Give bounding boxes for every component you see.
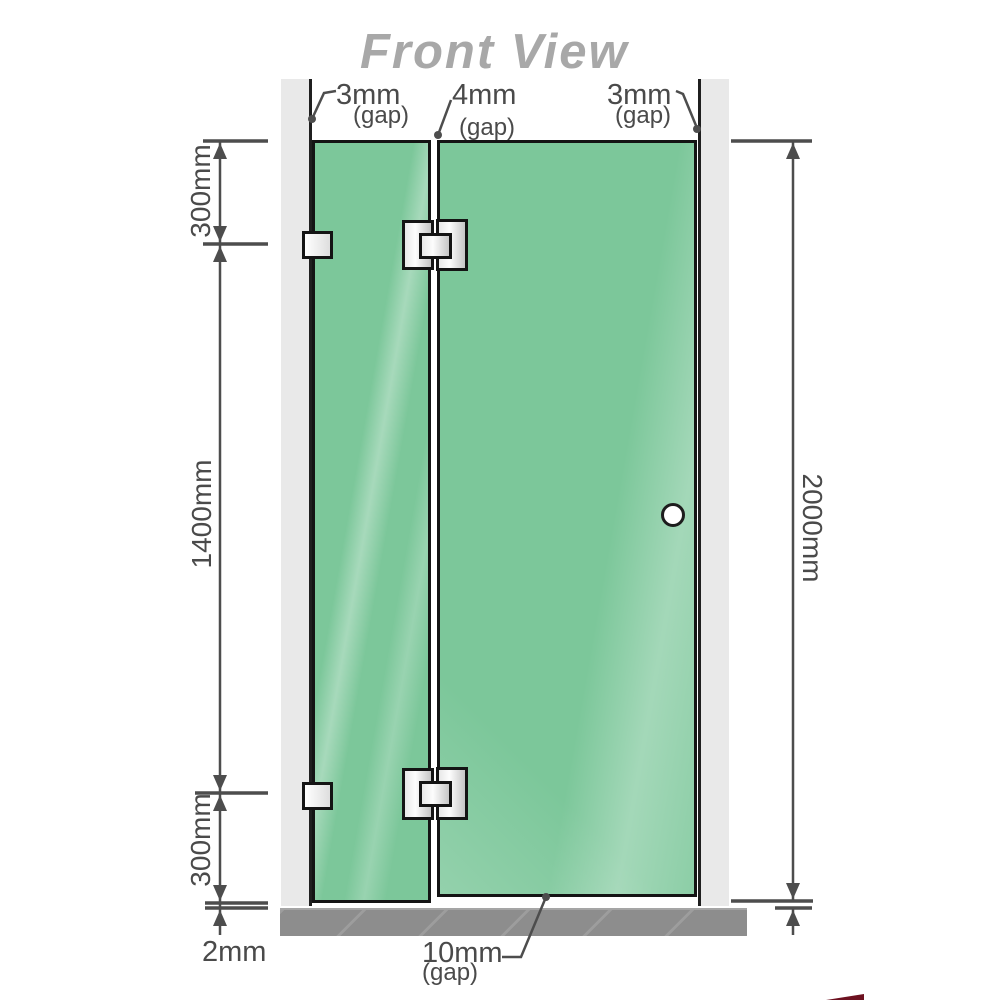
dim-total-height: 2000mm — [798, 474, 826, 583]
door-glass-panel — [437, 140, 697, 897]
dim-left-top: 300mm — [187, 144, 215, 237]
gap-middle-value: 4mm — [452, 81, 516, 110]
gap-middle-note: (gap) — [459, 116, 515, 140]
hinge-bridge — [419, 233, 452, 259]
wall-bracket-top — [302, 231, 333, 259]
floor-base — [280, 908, 747, 936]
door-knob — [661, 503, 685, 527]
front-view-diagram: Front View — [0, 0, 1000, 1000]
logo-fragment — [826, 994, 864, 1000]
gap-bottom-note: (gap) — [422, 961, 478, 985]
diagram-title: Front View — [360, 24, 629, 80]
dim-left-middle: 1400mm — [188, 460, 216, 569]
wall-channel-right — [698, 79, 729, 906]
dim-floor-gap: 2mm — [202, 938, 266, 967]
wall-bracket-bottom — [302, 782, 333, 810]
dim-left-bottom: 300mm — [187, 793, 215, 886]
hinge-bridge — [419, 781, 452, 807]
gap-right-note: (gap) — [615, 104, 671, 128]
gap-left-note: (gap) — [353, 104, 409, 128]
